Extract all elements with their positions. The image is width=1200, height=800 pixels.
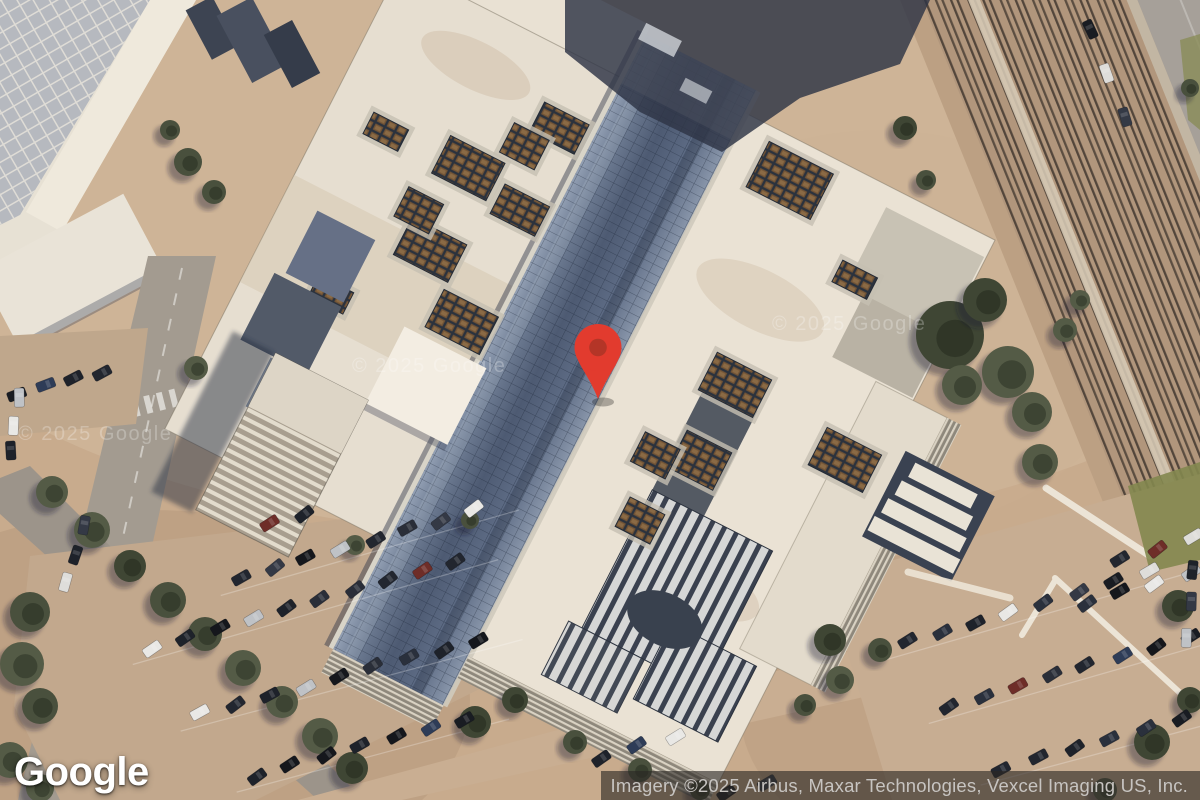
map-pin-hole	[589, 339, 607, 357]
attribution-bar: Imagery ©2025 Airbus, Maxar Technologies…	[601, 771, 1200, 800]
map-viewport[interactable]: © 2025 Google © 2025 Google © 2025 Googl…	[0, 0, 1200, 800]
attribution-text: Imagery ©2025 Airbus, Maxar Technologies…	[611, 775, 1188, 797]
watermark-text: © 2025 Google	[352, 355, 506, 377]
google-logo[interactable]: Google	[14, 750, 149, 795]
watermark-text: © 2025 Google	[772, 313, 926, 335]
watermark-text: © 2025 Google	[18, 423, 172, 445]
satellite-map[interactable]: © 2025 Google © 2025 Google © 2025 Googl…	[0, 0, 1200, 800]
